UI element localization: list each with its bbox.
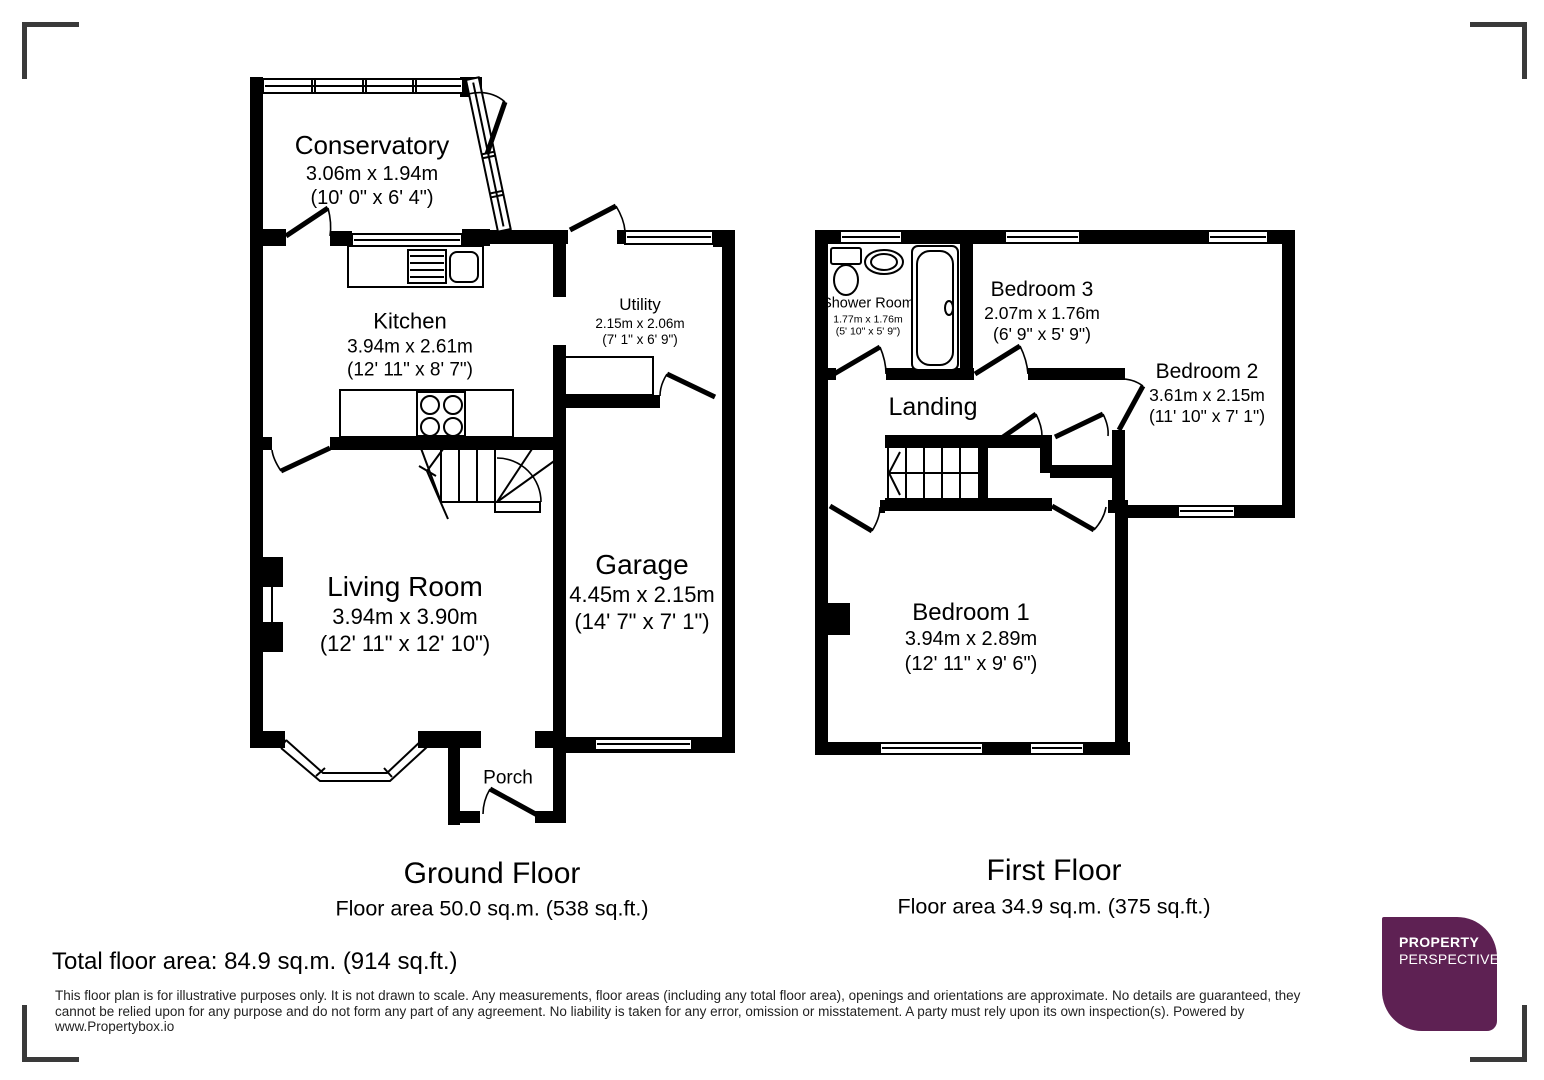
disclaimer-text: This floor plan is for illustrative purp… [55,988,1330,1035]
room-label-landing: Landing [889,392,978,423]
corner-mark-top-left [22,22,79,79]
room-name: Garage [569,548,715,582]
room-dims-imperial: (11' 10" x 7' 1") [1149,406,1265,427]
chimney-breast-bedroom1 [828,603,850,635]
corner-mark-top-right [1470,22,1527,79]
room-name: Bedroom 1 [905,598,1038,627]
stairs-first [888,448,978,498]
basin-fixture [865,250,903,274]
room-dims-imperial: (6' 9" x 5' 9") [984,324,1100,345]
room-dims-metric: 3.94m x 3.90m [320,604,490,631]
first-floor-title: First Floor [987,854,1122,888]
room-name: Living Room [320,570,490,604]
bath-fixture [912,246,958,370]
property-perspective-logo: PROPERTY PERSPECTIVE [1382,917,1497,1031]
room-dims-imperial: (12' 11" x 12' 10") [320,631,490,658]
bay-window [281,740,427,781]
stairs-ground [419,443,557,519]
room-name: Landing [889,392,978,423]
logo-line1: PROPERTY [1399,934,1497,951]
room-dims-imperial: (10' 0" x 6' 4") [295,186,450,210]
room-dims-metric: 3.94m x 2.89m [905,627,1038,651]
utility-window [625,231,713,244]
utility-counter [565,357,653,395]
room-label-bedroom3: Bedroom 3 2.07m x 1.76m (6' 9" x 5' 9") [984,277,1100,345]
room-dims-imperial: (14' 7" x 7' 1") [569,609,715,636]
room-name: Kitchen [347,308,473,335]
room-name: Porch [483,766,533,789]
toilet-fixture [831,248,861,295]
floorplan-page: Conservatory 3.06m x 1.94m (10' 0" x 6' … [0,0,1544,1080]
logo-line2: PERSPECTIVE [1399,951,1497,968]
chimney-breast-living [263,557,283,587]
corner-mark-bottom-left [22,1005,79,1062]
room-label-bedroom2: Bedroom 2 3.61m x 2.15m (11' 10" x 7' 1"… [1149,359,1265,427]
floorplan-drawing [0,0,1544,1080]
room-dims-metric: 2.15m x 2.06m [595,316,684,332]
room-name: Bedroom 2 [1149,359,1265,385]
room-dims-metric: 3.06m x 1.94m [295,161,450,185]
room-label-shower-room: Shower Room 1.77m x 1.76m (5' 10" x 5' 9… [822,295,914,338]
room-name: Shower Room [822,295,914,313]
hob-fixture [340,390,513,437]
room-dims-metric: 1.77m x 1.76m [822,313,914,326]
room-dims-imperial: (7' 1" x 6' 9") [595,332,684,348]
kitchen-window [352,234,462,246]
kitchen-sink-fixture [348,246,483,287]
room-label-conservatory: Conservatory 3.06m x 1.94m (10' 0" x 6' … [295,130,450,211]
ground-floor-area: Floor area 50.0 sq.m. (538 sq.ft.) [335,897,648,922]
room-label-kitchen: Kitchen 3.94m x 2.61m (12' 11" x 8' 7") [347,308,473,381]
room-label-bedroom1: Bedroom 1 3.94m x 2.89m (12' 11" x 9' 6"… [905,598,1038,676]
room-label-porch: Porch [483,766,533,789]
room-dims-metric: 2.07m x 1.76m [984,302,1100,323]
room-name: Conservatory [295,130,450,162]
total-floor-area: Total floor area: 84.9 sq.m. (914 sq.ft.… [52,948,458,976]
garage-door-band [595,739,692,750]
ground-floor-title: Ground Floor [404,857,581,891]
room-label-utility: Utility 2.15m x 2.06m (7' 1" x 6' 9") [595,295,684,349]
room-dims-imperial: (12' 11" x 8' 7") [347,358,473,381]
room-label-garage: Garage 4.45m x 2.15m (14' 7" x 7' 1") [569,548,715,636]
room-dims-imperial: (5' 10" x 5' 9") [822,326,914,339]
first-floor-area: Floor area 34.9 sq.m. (375 sq.ft.) [897,895,1210,920]
room-name: Utility [595,295,684,316]
room-dims-metric: 3.61m x 2.15m [1149,384,1265,405]
room-dims-imperial: (12' 11" x 9' 6") [905,652,1038,676]
room-dims-metric: 4.45m x 2.15m [569,582,715,609]
room-name: Bedroom 3 [984,277,1100,303]
room-label-living-room: Living Room 3.94m x 3.90m (12' 11" x 12'… [320,570,490,658]
room-dims-metric: 3.94m x 2.61m [347,335,473,358]
